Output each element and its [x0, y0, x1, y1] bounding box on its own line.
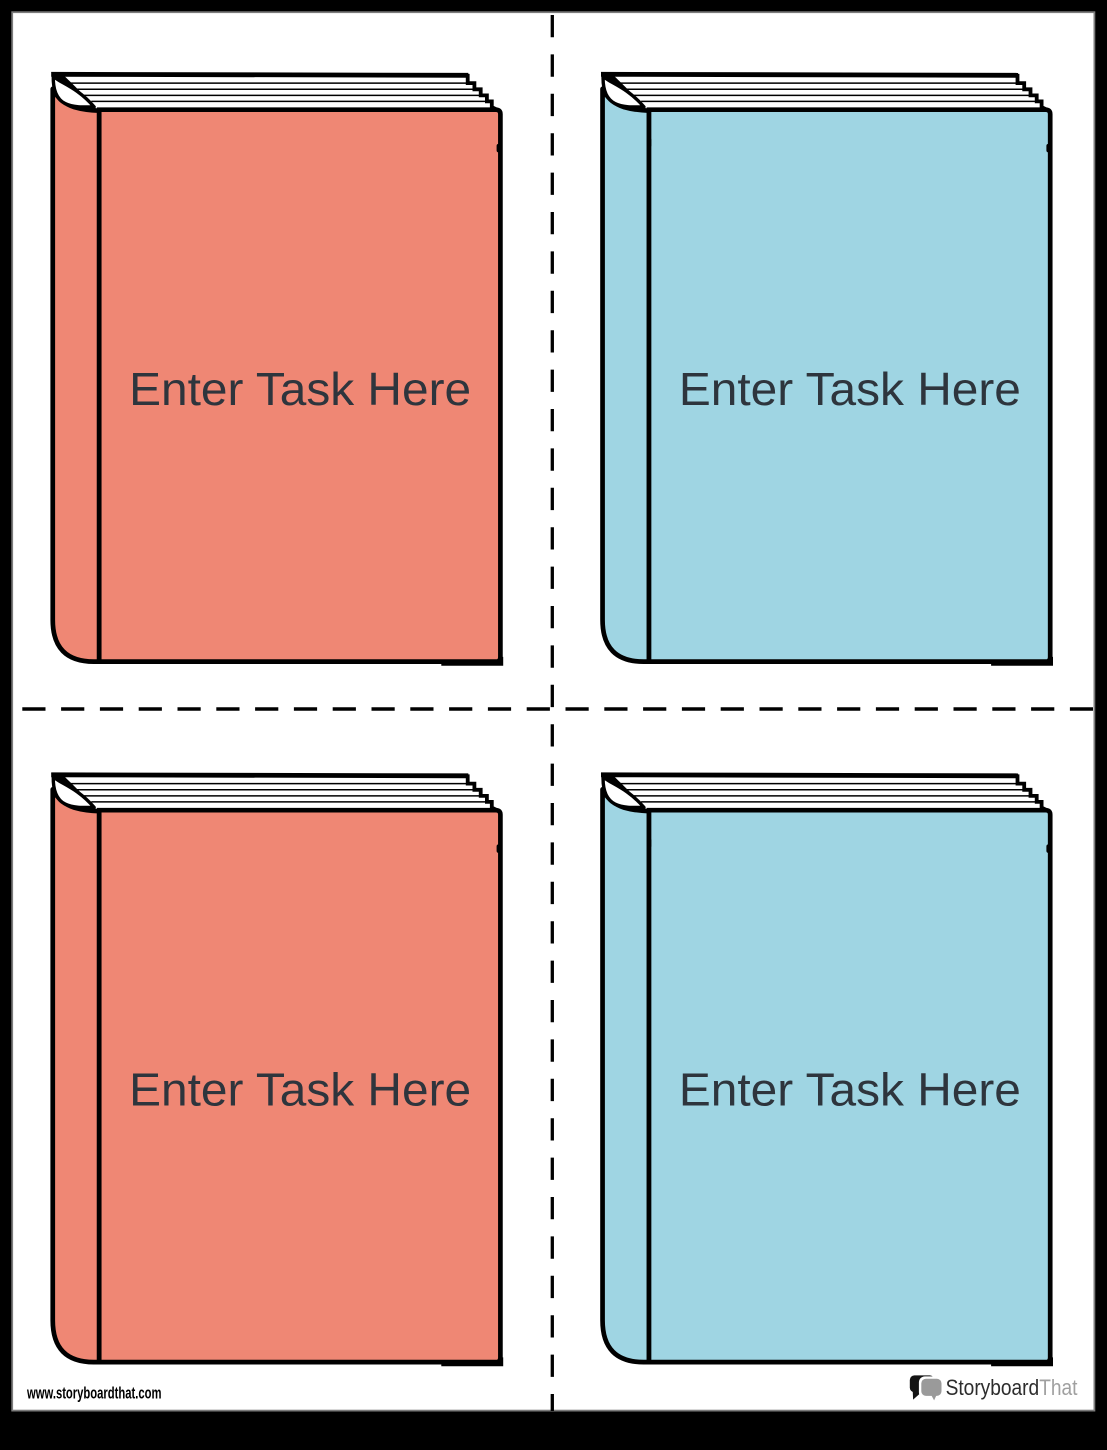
- svg-text:www.storyboardthat.com: www.storyboardthat.com: [26, 1384, 161, 1403]
- svg-text:StoryboardThat: StoryboardThat: [946, 1375, 1079, 1400]
